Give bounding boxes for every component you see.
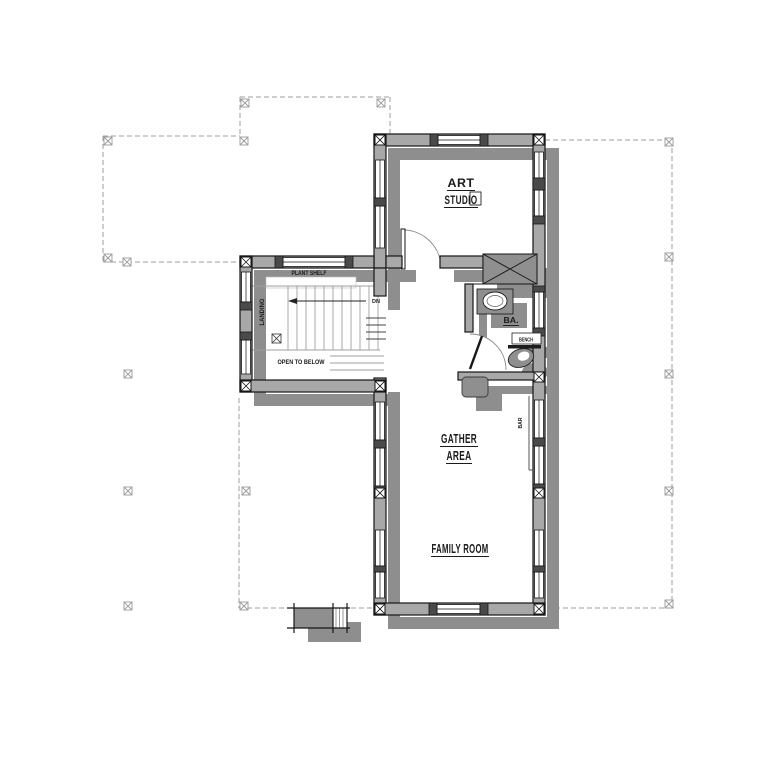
wall-post <box>429 603 437 615</box>
bath-label: BA. <box>504 316 519 325</box>
wall <box>465 284 473 332</box>
roof-post-marker <box>104 254 112 262</box>
gather-area-label-line2: AREA <box>447 448 472 463</box>
cast-shadow <box>388 282 400 310</box>
wall-post <box>430 134 438 146</box>
roof-post-marker <box>124 370 132 378</box>
plant-shelf-label: PLANT SHELF <box>292 270 327 277</box>
down-label: DN <box>372 299 380 305</box>
wall-post <box>374 440 386 448</box>
wall <box>386 256 402 268</box>
roof-post-marker <box>123 258 131 266</box>
cast-shadow <box>388 392 400 629</box>
roof-post-marker <box>665 138 673 146</box>
corner-post <box>375 135 385 145</box>
roof-post-marker <box>242 487 250 495</box>
roof-post-marker <box>104 137 112 145</box>
cast-shadow <box>400 270 416 282</box>
roof-post-marker <box>241 99 249 107</box>
roof-post-marker <box>124 487 132 495</box>
roof-post-marker <box>240 137 248 145</box>
bench-label: BENCH <box>519 338 533 344</box>
bench-edge <box>508 345 541 349</box>
wall-post <box>240 332 252 340</box>
wall <box>374 268 386 296</box>
wall-post <box>533 178 545 190</box>
wall-post <box>240 302 252 310</box>
roof-post-marker <box>240 602 248 610</box>
wall-post <box>374 198 386 206</box>
chimney-body <box>294 608 333 628</box>
landing-label: LANDING <box>260 298 266 325</box>
wall-post <box>480 134 488 146</box>
wall <box>240 380 386 392</box>
wall-post <box>533 438 545 446</box>
bar-label: BAR <box>518 417 524 428</box>
wall-post <box>533 566 545 572</box>
roof-post-marker <box>665 487 673 495</box>
roof-post-marker <box>377 99 385 107</box>
family-room-label: FAMILY ROOM <box>432 541 489 556</box>
roof-post-marker <box>124 602 132 610</box>
wall-post <box>374 566 386 572</box>
wall-post <box>345 256 353 268</box>
corner-post <box>534 488 544 498</box>
corner-post <box>375 604 385 614</box>
art-studio-label-line2: STUDIO <box>445 193 478 207</box>
corner-post <box>375 488 385 498</box>
corner-post <box>534 135 544 145</box>
corner-post <box>534 372 544 382</box>
wall-post <box>480 603 488 615</box>
cast-shadow <box>388 617 559 629</box>
open-to-below-label: OPEN TO BELOW <box>278 359 326 366</box>
corner-post <box>241 381 251 391</box>
corner-post <box>375 381 385 391</box>
roof-post-marker <box>665 600 673 608</box>
corner-post <box>241 257 251 267</box>
roof-post-marker <box>665 253 673 261</box>
floor-plan-drawing: ART STUDIO GATHER AREA FAMILY ROOM PLANT… <box>0 0 768 758</box>
gather-area-label-line1: GATHER <box>441 431 477 446</box>
chase <box>462 377 488 397</box>
wall-post <box>533 216 545 224</box>
corner-post <box>534 604 544 614</box>
stair-post-marker <box>272 334 281 343</box>
wall-post <box>533 286 545 292</box>
wall <box>440 256 483 268</box>
sink <box>483 292 507 310</box>
wall-post <box>275 256 283 268</box>
floor-plan-canvas: ART STUDIO GATHER AREA FAMILY ROOM PLANT… <box>0 0 768 758</box>
roof-post-marker <box>665 370 673 378</box>
art-studio-label-line1: ART <box>448 176 475 190</box>
